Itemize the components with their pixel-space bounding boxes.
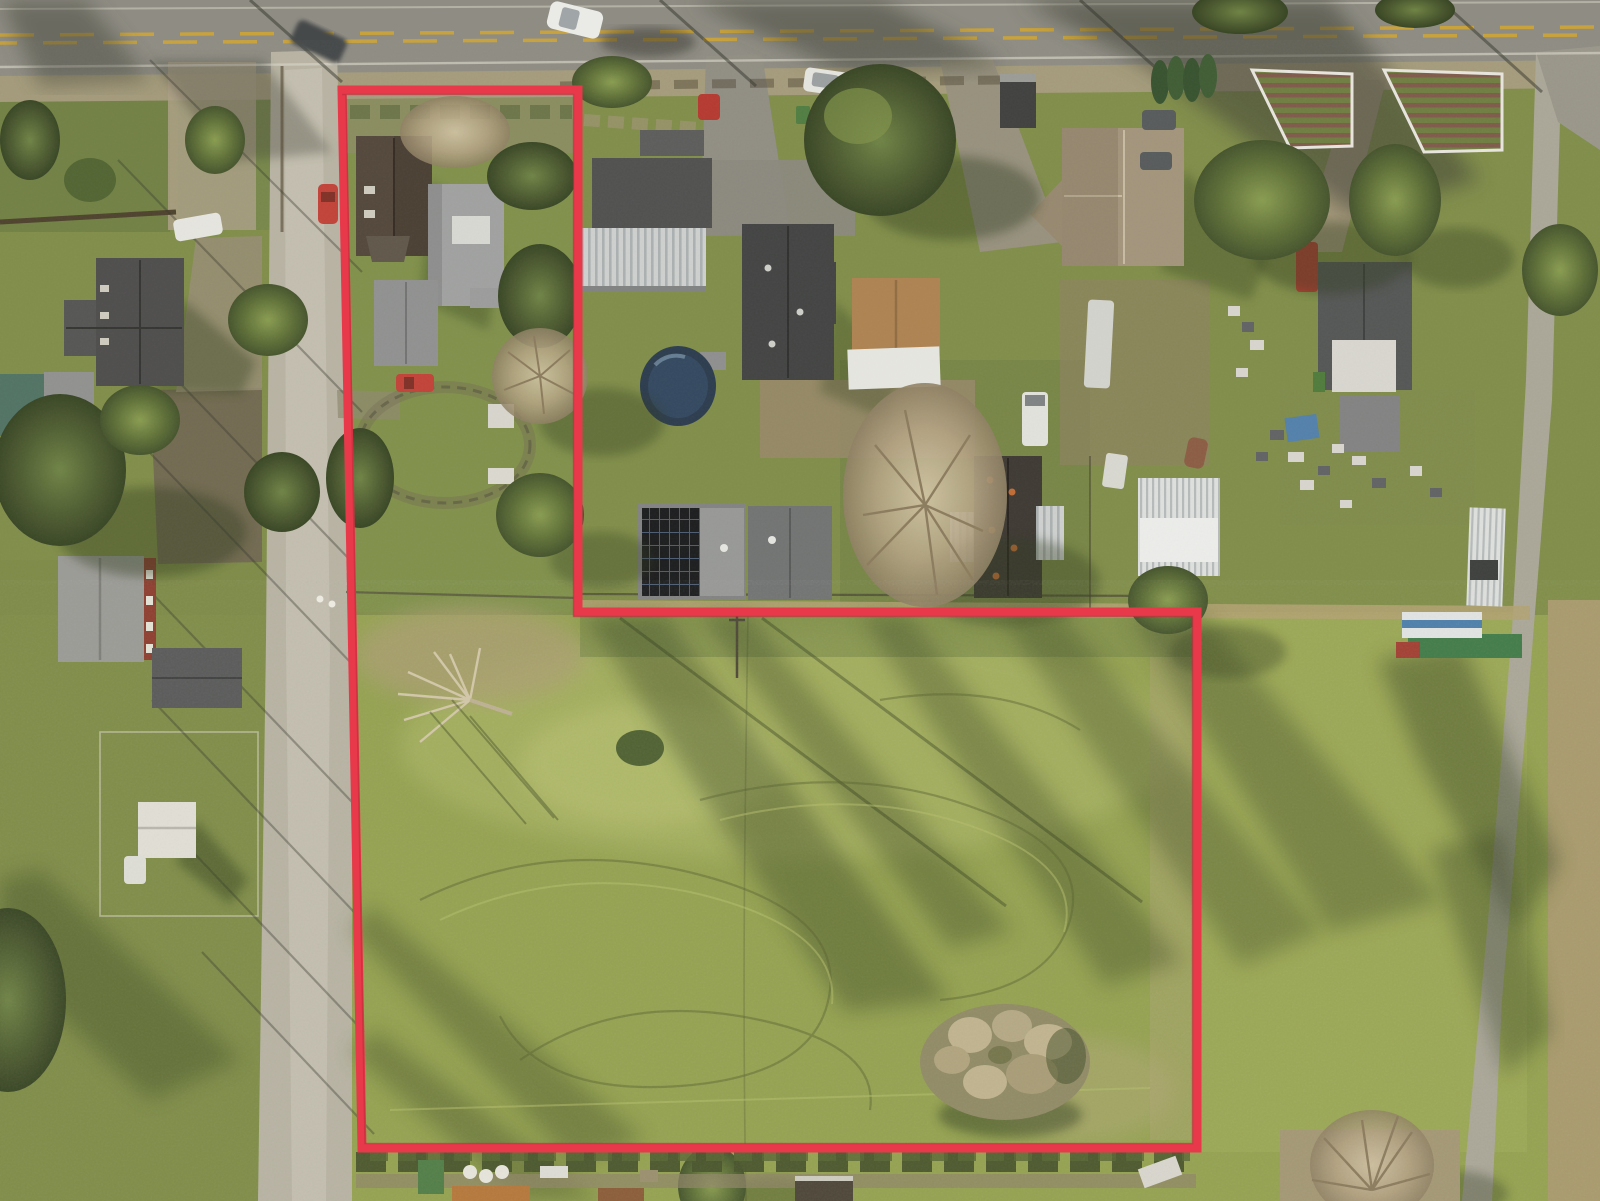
aerial-screenshot	[0, 0, 1600, 1201]
aerial-photo-canvas	[0, 0, 1600, 1201]
warm-cast	[0, 0, 1600, 1201]
texture-overlays	[0, 0, 1600, 1201]
